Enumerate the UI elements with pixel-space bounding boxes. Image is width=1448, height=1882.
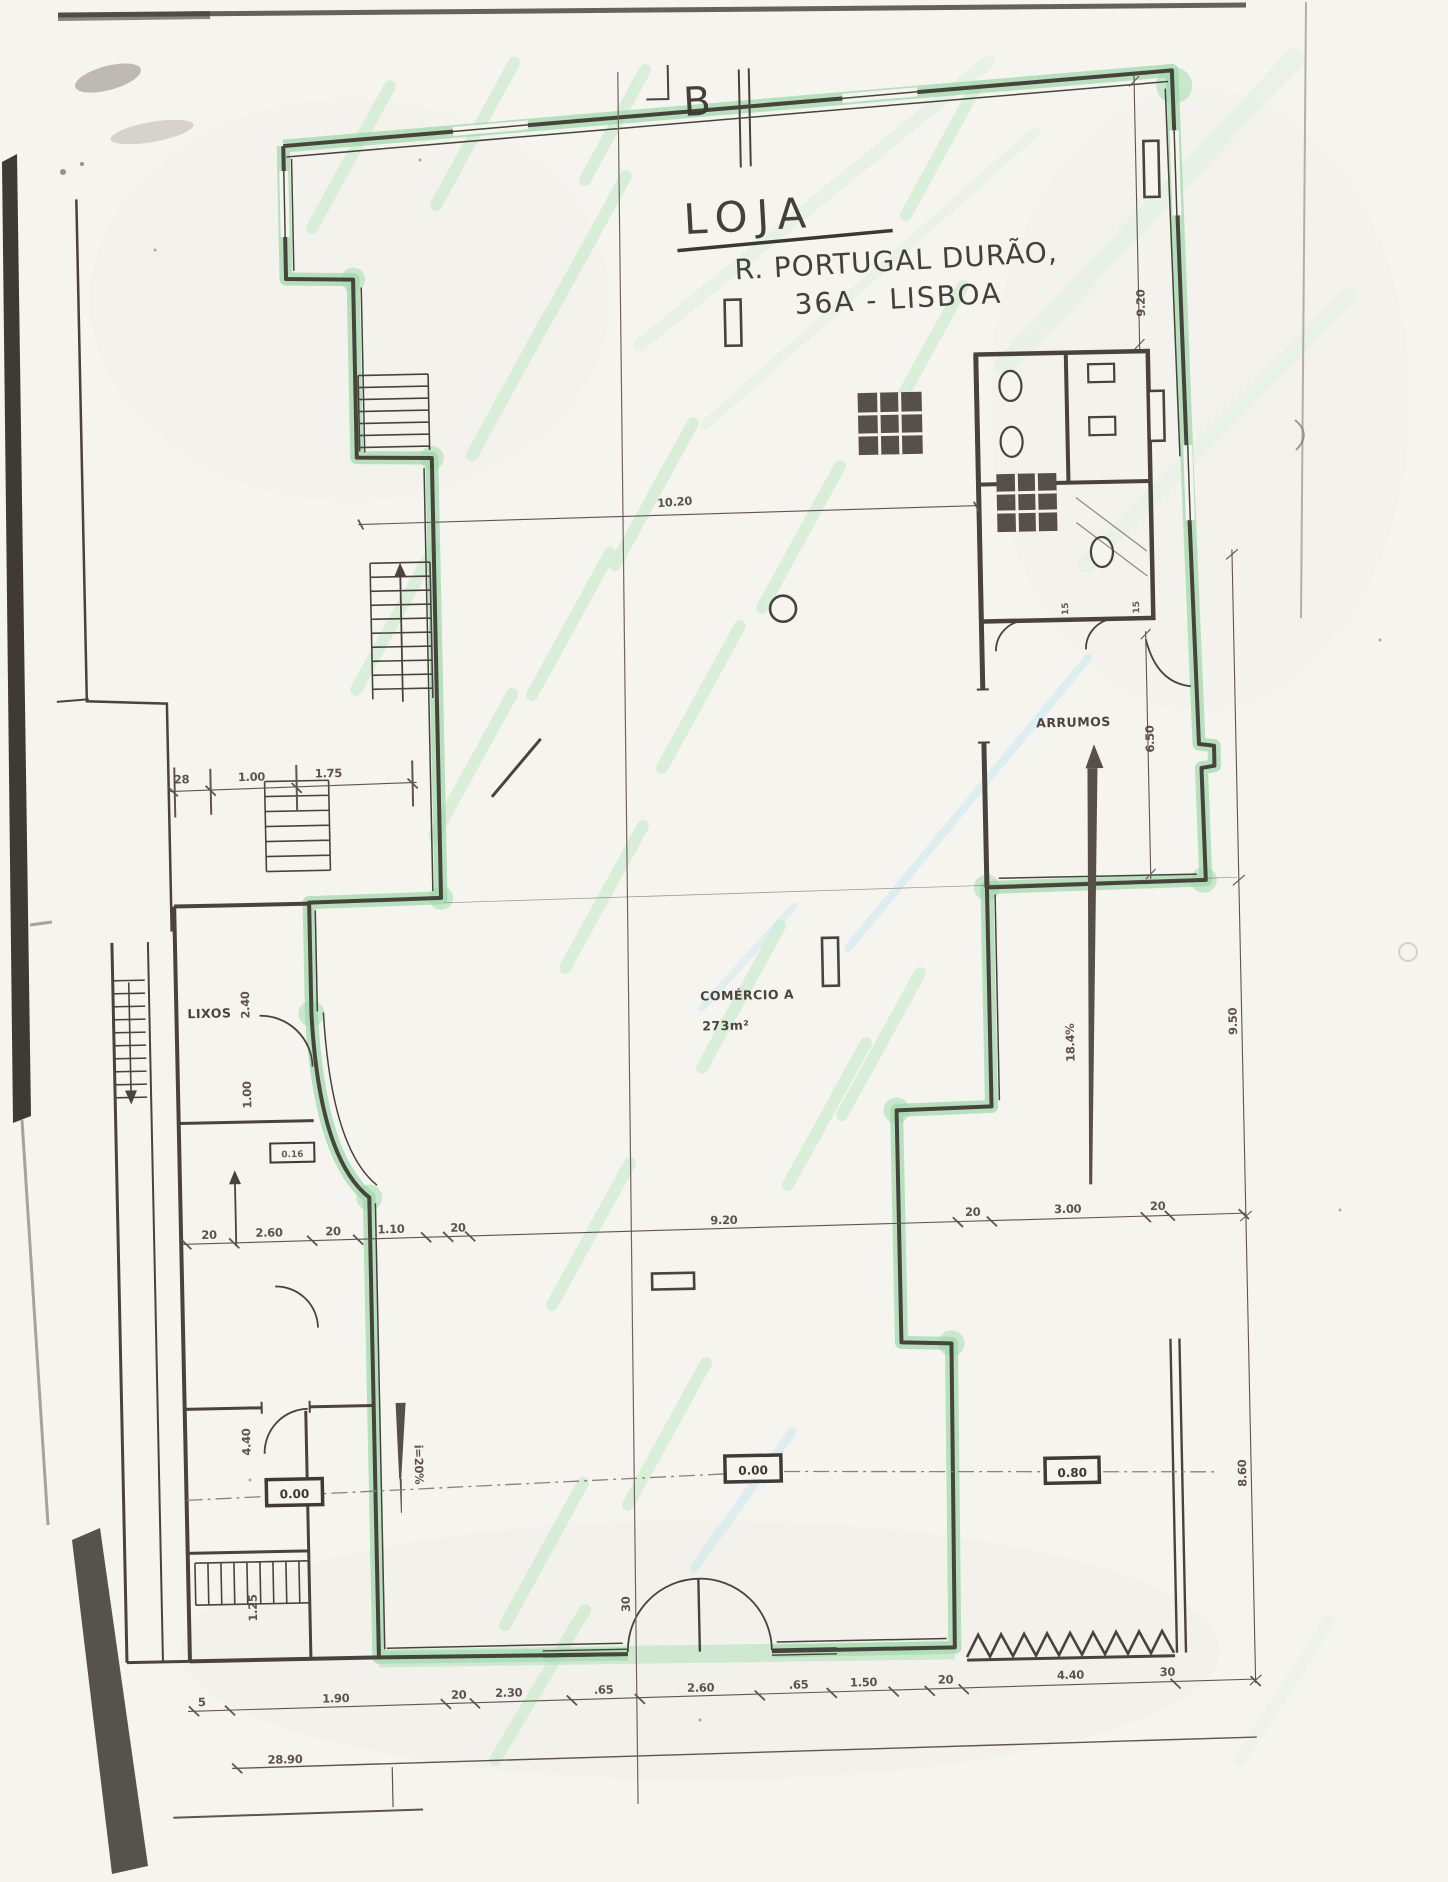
dim-bot-5: 2.60	[687, 1680, 715, 1695]
dim-mid-8: 20	[1150, 1199, 1166, 1213]
dim-storage-height: 6.50	[1143, 725, 1158, 753]
dim-top-width: 10.20	[657, 494, 693, 511]
dim-mid-2: 20	[325, 1224, 341, 1238]
ramp-arrow-entrance	[396, 1403, 408, 1513]
dim-mid-3: 1.10	[377, 1222, 405, 1237]
dim-right-top: 9.20	[1133, 289, 1148, 317]
slope-labels: 18.4% i=20%	[403, 1023, 1086, 1486]
floor-plan-svg: 0.00 0.00 0.80 0.16 ARRUMOS LIXOS COMÉRC…	[0, 0, 1448, 1882]
handwritten-title: LOJA	[682, 188, 816, 244]
room-label-area: 273m²	[702, 1017, 749, 1033]
level-center: 0.00	[738, 1463, 768, 1478]
handwritten-section-letter: B	[682, 79, 712, 126]
dim-bot-1: 1.90	[322, 1691, 350, 1706]
dim-bot-8: 20	[938, 1672, 954, 1686]
dim-mid-7: 3.00	[1054, 1202, 1082, 1217]
dim-bot-10: 30	[1160, 1665, 1176, 1679]
dim-bot-6: .65	[789, 1677, 809, 1691]
handwritten-address-2: 36A - LISBOA	[794, 277, 1003, 322]
dim-bot-0: 5	[198, 1695, 206, 1709]
stair-far-left	[113, 980, 148, 1105]
paper-texture	[90, 90, 1410, 1780]
dim-left-440: 4.40	[239, 1428, 254, 1456]
room-label-arrumos: ARRUMOS	[1036, 714, 1111, 731]
room-label-lixos: LIXOS	[187, 1005, 231, 1021]
level-left: 0.00	[280, 1487, 310, 1502]
dim-overall-width: 28.90	[267, 1752, 302, 1767]
dim-mid-4: 20	[450, 1220, 466, 1234]
dim-bot-9: 4.40	[1057, 1668, 1085, 1683]
stair-flight-left	[370, 562, 433, 702]
dim-left-125: 1.25	[246, 1594, 261, 1622]
dim-left-100: 1.00	[238, 770, 266, 785]
dim-far-right-lower: 8.60	[1235, 1459, 1250, 1487]
dim-mid-1: 2.60	[255, 1225, 283, 1240]
dim-toilet-a: 15	[1061, 602, 1071, 615]
dim-mid-0: 20	[201, 1228, 217, 1242]
dim-mid-5: 9.20	[710, 1213, 738, 1228]
dim-left-28: 28	[174, 772, 190, 786]
room-labels: ARRUMOS LIXOS COMÉRCIO A 273m²	[182, 714, 1118, 1044]
dim-mid-6: 20	[965, 1205, 981, 1219]
room-label-comercio: COMÉRCIO A	[700, 987, 794, 1004]
slope-entrance-ramp: i=20%	[411, 1445, 426, 1486]
dim-trash-100: 1.00	[240, 1081, 255, 1109]
dim-bot-3: 2.30	[495, 1685, 523, 1700]
level-markers: 0.00 0.00 0.80 0.16	[259, 1126, 1099, 1505]
dim-door-width: 30	[619, 1596, 633, 1612]
slope-right-ramp: 18.4%	[1063, 1023, 1078, 1062]
small-level-box: 0.16	[281, 1150, 303, 1160]
stairs	[100, 372, 559, 1607]
dim-bot-7: 1.50	[850, 1675, 878, 1690]
dim-bot-2: 20	[451, 1688, 467, 1702]
ramp-arrow-right	[1080, 744, 1112, 1184]
level-right: 0.80	[1057, 1466, 1087, 1481]
dim-left-175: 1.75	[315, 766, 343, 781]
dim-toilet-b: 15	[1132, 601, 1142, 614]
dim-far-right-upper: 9.50	[1226, 1007, 1241, 1035]
dim-trash-240: 2.40	[238, 991, 253, 1019]
scanned-floor-plan-page: 0.00 0.00 0.80 0.16 ARRUMOS LIXOS COMÉRC…	[0, 0, 1448, 1882]
dim-bot-4: .65	[594, 1682, 614, 1696]
